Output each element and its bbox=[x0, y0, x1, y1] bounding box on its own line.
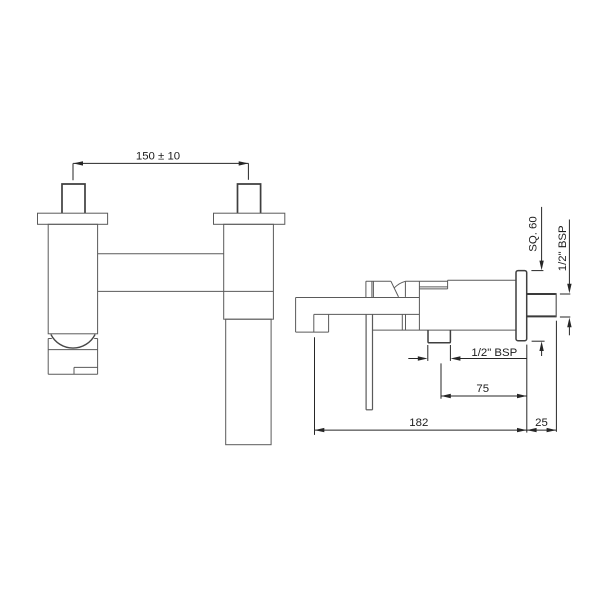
svg-text:25: 25 bbox=[535, 417, 548, 429]
svg-text:1/2" BSP: 1/2" BSP bbox=[471, 347, 517, 359]
svg-text:75: 75 bbox=[476, 383, 489, 395]
svg-text:182: 182 bbox=[409, 417, 428, 429]
svg-text:1/2" BSP: 1/2" BSP bbox=[557, 225, 569, 271]
svg-text:150 ± 10: 150 ± 10 bbox=[136, 151, 180, 163]
svg-text:SQ. 60: SQ. 60 bbox=[528, 216, 540, 251]
